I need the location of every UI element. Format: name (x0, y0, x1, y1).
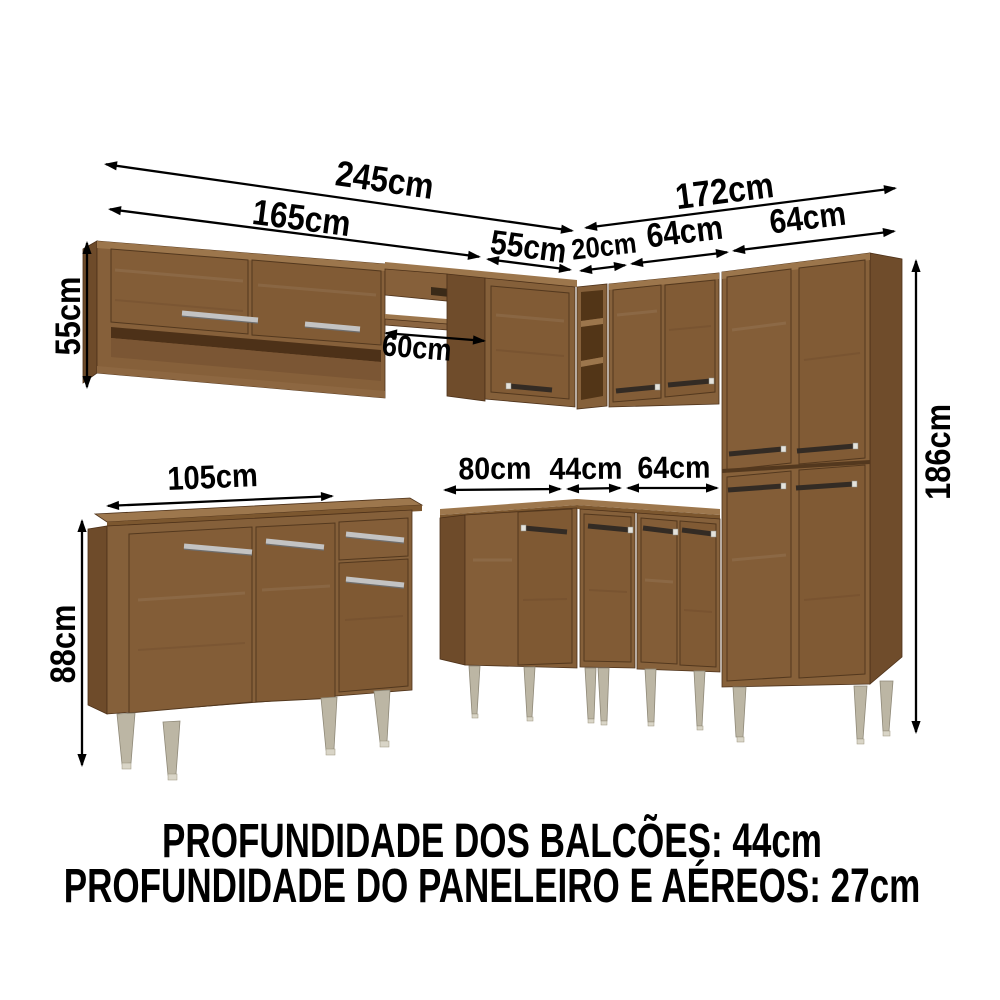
cabinet-door (680, 521, 716, 667)
cabinet-door (641, 518, 677, 664)
dim-label-base-height: 88cm (43, 605, 82, 684)
shelf-opening (581, 363, 603, 400)
handle-tip (506, 383, 511, 389)
dim-label-niche: 60cm (381, 329, 453, 368)
cabinet-side-panel (870, 253, 902, 684)
cabinet-door (491, 286, 569, 399)
cabinet-door (252, 260, 381, 345)
dim-label-tall-height: 186cm (918, 404, 957, 500)
upper-shelf-unit (577, 284, 607, 409)
cabinet-side-panel (88, 526, 107, 714)
cabinet-door (727, 269, 791, 470)
cabinet-side-panel (440, 515, 465, 665)
niche-top-panel (385, 269, 447, 301)
cabinet-door (111, 249, 248, 334)
dim-label-left-base: 105cm (167, 456, 259, 497)
dim-label-mid-base: 44cm (549, 452, 622, 487)
cabinet-door (727, 471, 791, 681)
cabinet-door (799, 465, 865, 678)
footer-line-paneleiro-depth: PROFUNDIDADE DO PANELEIRO E AÉREOS: 27cm (64, 859, 921, 913)
footer-notes: PROFUNDIDADE DOS BALCÕES: 44cm PROFUNDID… (64, 812, 921, 912)
shelf-opening (581, 290, 603, 321)
diagram-canvas: 245cm 165cm 55cm 20cm 64cm 64cm 172cm 55… (0, 0, 1000, 1000)
cabinet-door (799, 260, 865, 464)
tall-cabinet (722, 253, 902, 744)
shelf-opening (581, 324, 603, 361)
cabinet-door (584, 514, 631, 662)
cabinet-door (129, 527, 252, 713)
dim-label-right-base: 64cm (637, 451, 710, 486)
dim-label-upper-height: 55cm (48, 277, 87, 356)
cabinet-door (613, 285, 661, 402)
product-dimension-diagram: 245cm 165cm 55cm 20cm 64cm 64cm 172cm 55… (0, 0, 1000, 1000)
dim-label-corner-base: 80cm (458, 452, 531, 487)
upper-right-cabinet (609, 273, 719, 407)
